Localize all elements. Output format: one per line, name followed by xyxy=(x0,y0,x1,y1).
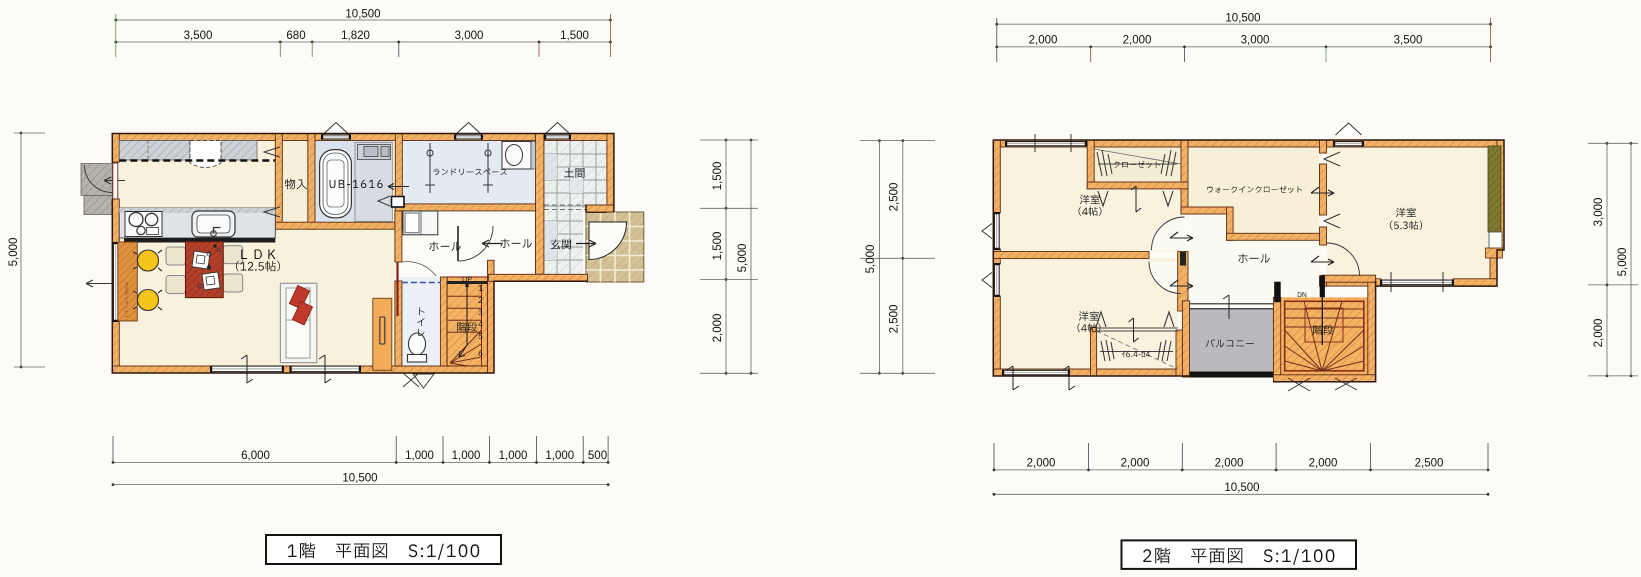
svg-text:1,500: 1,500 xyxy=(712,162,724,191)
svg-text:5,000: 5,000 xyxy=(865,245,877,274)
svg-text:3,500: 3,500 xyxy=(184,30,213,42)
svg-text:2,000: 2,000 xyxy=(1123,35,1152,47)
svg-text:5,000: 5,000 xyxy=(8,238,20,267)
svg-text:1,000: 1,000 xyxy=(405,450,434,462)
svg-text:1,000: 1,000 xyxy=(499,450,528,462)
svg-text:10,500: 10,500 xyxy=(1225,13,1260,25)
svg-text:1,500: 1,500 xyxy=(560,30,589,42)
svg-text:2,500: 2,500 xyxy=(1415,458,1444,470)
svg-text:10,500: 10,500 xyxy=(342,473,377,485)
svg-text:10,500: 10,500 xyxy=(345,9,380,21)
svg-text:2,000: 2,000 xyxy=(1215,458,1244,470)
svg-text:3,000: 3,000 xyxy=(1593,198,1605,227)
svg-text:5,000: 5,000 xyxy=(1617,248,1629,277)
svg-text:680: 680 xyxy=(286,30,305,42)
svg-text:10,500: 10,500 xyxy=(1224,482,1259,494)
svg-text:2,500: 2,500 xyxy=(889,305,901,334)
svg-text:5,000: 5,000 xyxy=(737,244,749,273)
svg-text:3,000: 3,000 xyxy=(1241,35,1270,47)
svg-text:6,000: 6,000 xyxy=(241,450,270,462)
svg-text:2,000: 2,000 xyxy=(1029,35,1058,47)
svg-text:2,000: 2,000 xyxy=(1309,458,1338,470)
svg-text:2,000: 2,000 xyxy=(1027,458,1056,470)
svg-text:500: 500 xyxy=(588,450,607,462)
svg-text:2,000: 2,000 xyxy=(1593,319,1605,348)
svg-text:2,000: 2,000 xyxy=(712,314,724,343)
svg-text:1,500: 1,500 xyxy=(712,232,724,261)
svg-text:1,000: 1,000 xyxy=(545,450,574,462)
svg-text:3,500: 3,500 xyxy=(1394,35,1423,47)
svg-text:1,820: 1,820 xyxy=(341,30,370,42)
svg-text:3,000: 3,000 xyxy=(455,30,484,42)
svg-text:2,500: 2,500 xyxy=(889,183,901,212)
svg-text:1,000: 1,000 xyxy=(452,450,481,462)
svg-text:2,000: 2,000 xyxy=(1121,458,1150,470)
